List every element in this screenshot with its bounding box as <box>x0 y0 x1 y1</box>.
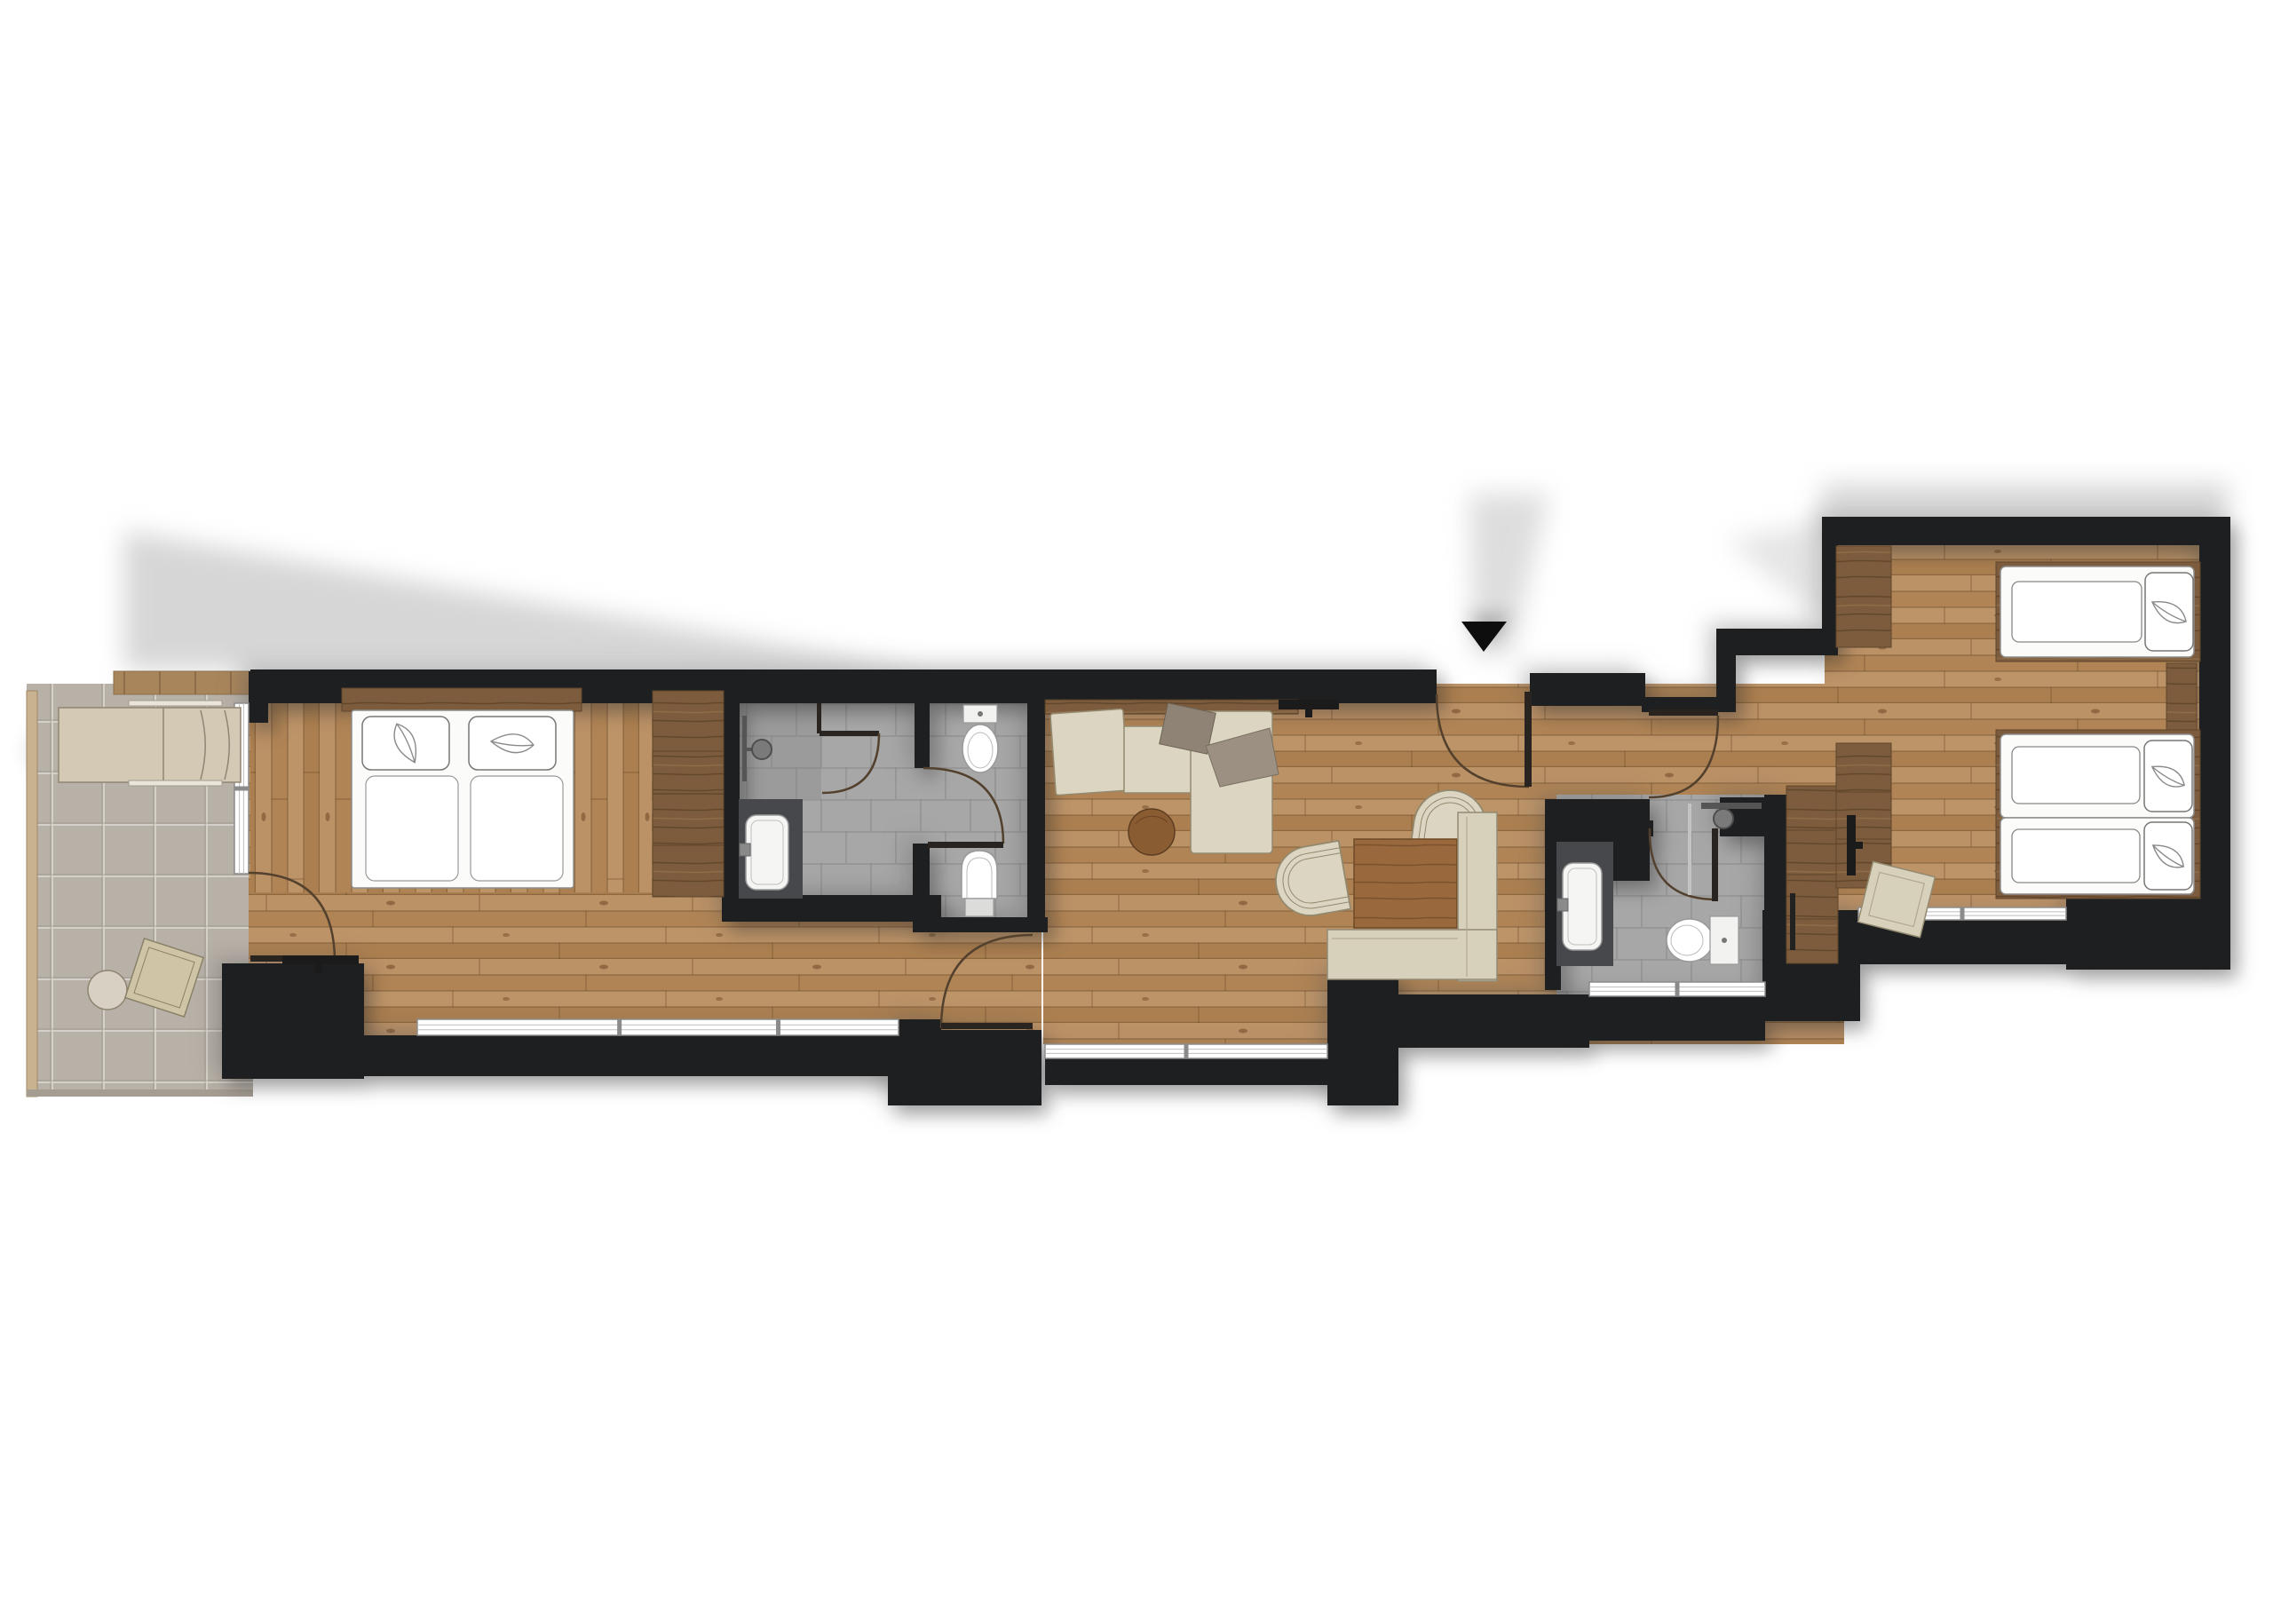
facade-block-3 <box>1327 972 1398 1105</box>
bedA-mattress <box>2012 582 2142 642</box>
terrace-left-edge <box>27 691 37 1097</box>
toilet-bath2-button <box>1722 938 1727 943</box>
wall-wc-stub-low <box>913 844 930 932</box>
terrace-bottom-edge <box>27 1089 253 1097</box>
bed1-duvet-right <box>471 776 563 881</box>
facade-wall-c2 <box>1589 996 1765 1041</box>
shower2-head <box>1714 809 1733 828</box>
facade-block-5 <box>2066 895 2230 970</box>
wall-wc-stub-top <box>915 684 930 768</box>
bedC-mattress <box>2012 829 2140 883</box>
bathroom2-door-leaf <box>1712 828 1718 901</box>
bidet-wc-base <box>965 899 994 916</box>
faucet-bath1 <box>740 844 750 856</box>
facade-block-2 <box>888 1030 1041 1105</box>
wall-top-jog <box>1716 629 1736 712</box>
shower1-pipe <box>742 716 747 781</box>
washbasin-bath1 <box>746 815 788 890</box>
toilet-wc-button <box>978 711 983 717</box>
shadow-above-top-wall <box>124 531 923 669</box>
tv-bedroom2-mount <box>1856 842 1863 849</box>
bedC-pillow <box>2144 822 2192 890</box>
faucet-bath2 <box>1557 899 1568 911</box>
shadow-bump-corner <box>1727 522 1822 622</box>
tv-bedroom1-mount <box>315 964 322 973</box>
terrace-deck-strip <box>114 671 256 694</box>
nightstand-bedroom2 <box>2166 663 2197 733</box>
hall-door-leaf <box>1649 709 1718 716</box>
bed1-pillow-left <box>362 717 449 770</box>
lounger-rail-top <box>129 701 222 706</box>
washbasin-bath2 <box>1563 863 1602 950</box>
tv-living <box>1279 700 1339 709</box>
wall-top-hall <box>1736 629 1825 655</box>
facade-wall-c1 <box>1398 994 1589 1048</box>
shadow-above-bump <box>1822 483 2229 519</box>
floor-plan <box>0 0 2273 1624</box>
bed1-pillow-right <box>469 717 556 770</box>
wall-bath2-hinge-post <box>1639 820 1653 836</box>
wall-bed1-bath1 <box>722 684 740 922</box>
shower1-head <box>752 740 772 759</box>
entrance-door-leaf <box>1525 692 1532 787</box>
sofa-section-left <box>1050 709 1129 795</box>
tv-bedroom2 <box>1847 815 1856 875</box>
dining-table <box>1354 839 1457 928</box>
bathroom1-door-leaf <box>820 731 879 736</box>
bench-horizontal <box>1327 930 1497 979</box>
lounger <box>59 708 241 782</box>
lounger-rail-bottom <box>129 780 222 786</box>
wall-bath1-bottom <box>722 895 941 922</box>
bed1-duvet-left <box>366 776 458 881</box>
shower2-bar <box>1701 803 1762 809</box>
window-bathroom2 <box>1589 982 1765 996</box>
wall-right <box>2199 531 2230 904</box>
wall-corner-bedroom1 <box>249 671 268 723</box>
bedB-mattress <box>2012 747 2140 804</box>
wall-bump-top <box>1822 517 2230 545</box>
wall-wc-right <box>1027 684 1045 932</box>
bedA-pillow <box>2145 573 2193 651</box>
bathroom1-door-frame <box>817 703 821 733</box>
floor-plan-page <box>0 0 2273 1624</box>
wall-top-right-of-entrance <box>1530 673 1645 706</box>
living-divider-door-leaf <box>941 1023 1033 1029</box>
window-living <box>1045 1044 1327 1058</box>
facade-wall-b <box>1045 1058 1327 1085</box>
facade-block-terrace <box>222 963 364 1079</box>
terrace-side-table <box>88 970 127 1010</box>
wc-door-leaf <box>928 842 1003 848</box>
tv-bedroom1 <box>282 955 359 964</box>
facade-wall-a <box>364 1035 941 1076</box>
window-bedroom1 <box>417 1019 899 1035</box>
bedB-pillow <box>2144 741 2192 812</box>
hall-cabinet-rail <box>1790 893 1795 950</box>
tv-living-mount <box>1305 709 1312 717</box>
bed1-headboard <box>342 688 582 711</box>
